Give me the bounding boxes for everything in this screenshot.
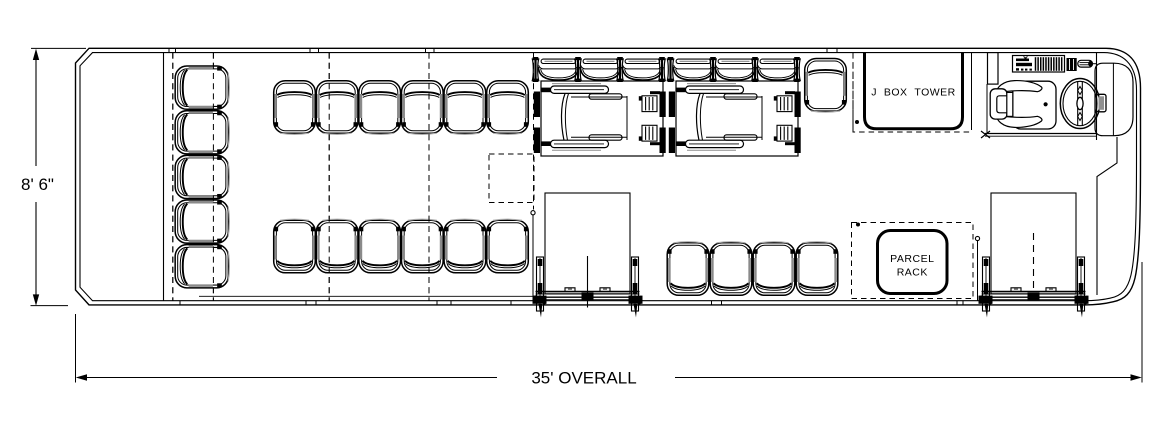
svg-text:35' OVERALL: 35' OVERALL (531, 369, 636, 388)
svg-text:RACK: RACK (897, 267, 928, 279)
svg-text:8' 6": 8' 6" (21, 175, 54, 194)
svg-text:PARCEL: PARCEL (890, 253, 934, 265)
svg-text:J BOX TOWER: J BOX TOWER (871, 87, 955, 99)
